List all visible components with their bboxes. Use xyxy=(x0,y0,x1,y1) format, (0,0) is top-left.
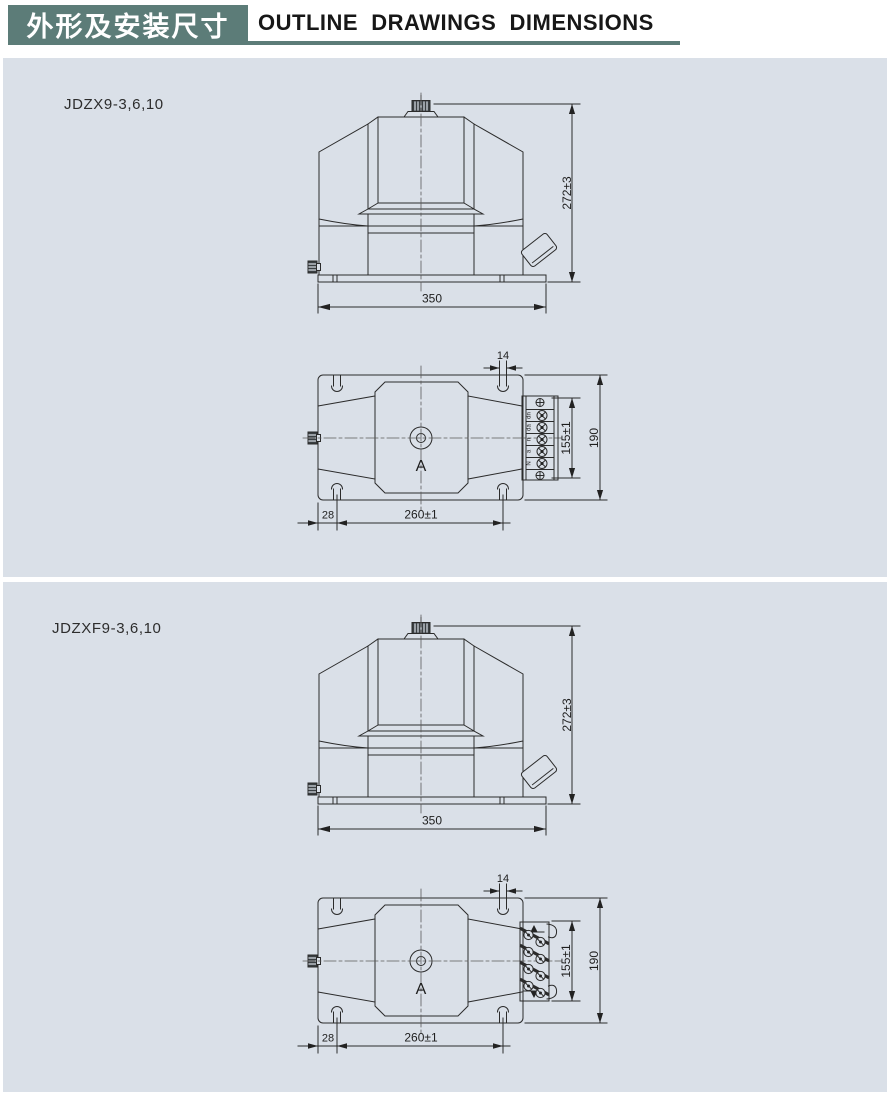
dim-width-label: 350 xyxy=(422,292,442,306)
core-label: A xyxy=(416,981,427,998)
front-view-drawing-jdzx9: 272±3 350 xyxy=(300,90,600,318)
dim-height-label: 272±3 xyxy=(560,698,574,732)
dim-depth-label: 190 xyxy=(587,428,601,448)
panel-jdzx9: JDZX9-3,6,10 272±3 350 14 155±1 190 28 2… xyxy=(3,58,887,577)
dim-slot-label: 14 xyxy=(497,873,509,885)
dim-terminal-label: 155±1 xyxy=(559,421,573,455)
core-label: A xyxy=(416,458,427,475)
panel-jdzxf9: JDZXF9-3,6,10 272±3 350 14 155±1 190 28 … xyxy=(3,582,887,1092)
terminal-label-da: da xyxy=(527,424,533,431)
terminal-label-n: n xyxy=(527,438,533,441)
title-underline xyxy=(8,41,680,45)
top-view-drawing-jdzxf9: 14 155±1 190 28 260±1 A xyxy=(295,871,620,1061)
dim-slot-label: 14 xyxy=(497,350,509,362)
page: 外形及安装尺寸 OUTLINE DRAWINGS DIMENSIONS xyxy=(0,0,890,1104)
dim-depth-label: 190 xyxy=(587,951,601,971)
dim-offset-label: 28 xyxy=(322,510,334,522)
terminal-label-N: N xyxy=(527,461,533,465)
dim-width-label: 350 xyxy=(422,814,442,828)
page-title-chinese: 外形及安装尺寸 xyxy=(27,5,230,44)
dim-offset-label: 28 xyxy=(322,1033,334,1045)
title-box: 外形及安装尺寸 xyxy=(8,5,248,43)
dim-terminal-label: 155±1 xyxy=(559,944,573,978)
terminal-label-dn: dn xyxy=(527,412,533,419)
model-label-jdzx9: JDZX9-3,6,10 xyxy=(64,96,164,113)
page-title-english: OUTLINE DRAWINGS DIMENSIONS xyxy=(258,10,654,36)
dim-spacing-label: 260±1 xyxy=(404,508,438,522)
dim-spacing-label: 260±1 xyxy=(404,1031,438,1045)
terminal-label-a: a xyxy=(527,449,533,453)
front-view-drawing-jdzxf9: 272±3 350 xyxy=(300,612,600,840)
terminal-block-fuse xyxy=(520,922,557,1001)
dim-height-label: 272±3 xyxy=(560,176,574,210)
model-label-jdzxf9: JDZXF9-3,6,10 xyxy=(52,620,162,637)
front-view-outline xyxy=(308,93,580,313)
top-view-drawing-jdzx9: 14 155±1 190 28 260±1 A dn da n a N xyxy=(295,348,620,538)
front-view-outline xyxy=(308,615,580,835)
